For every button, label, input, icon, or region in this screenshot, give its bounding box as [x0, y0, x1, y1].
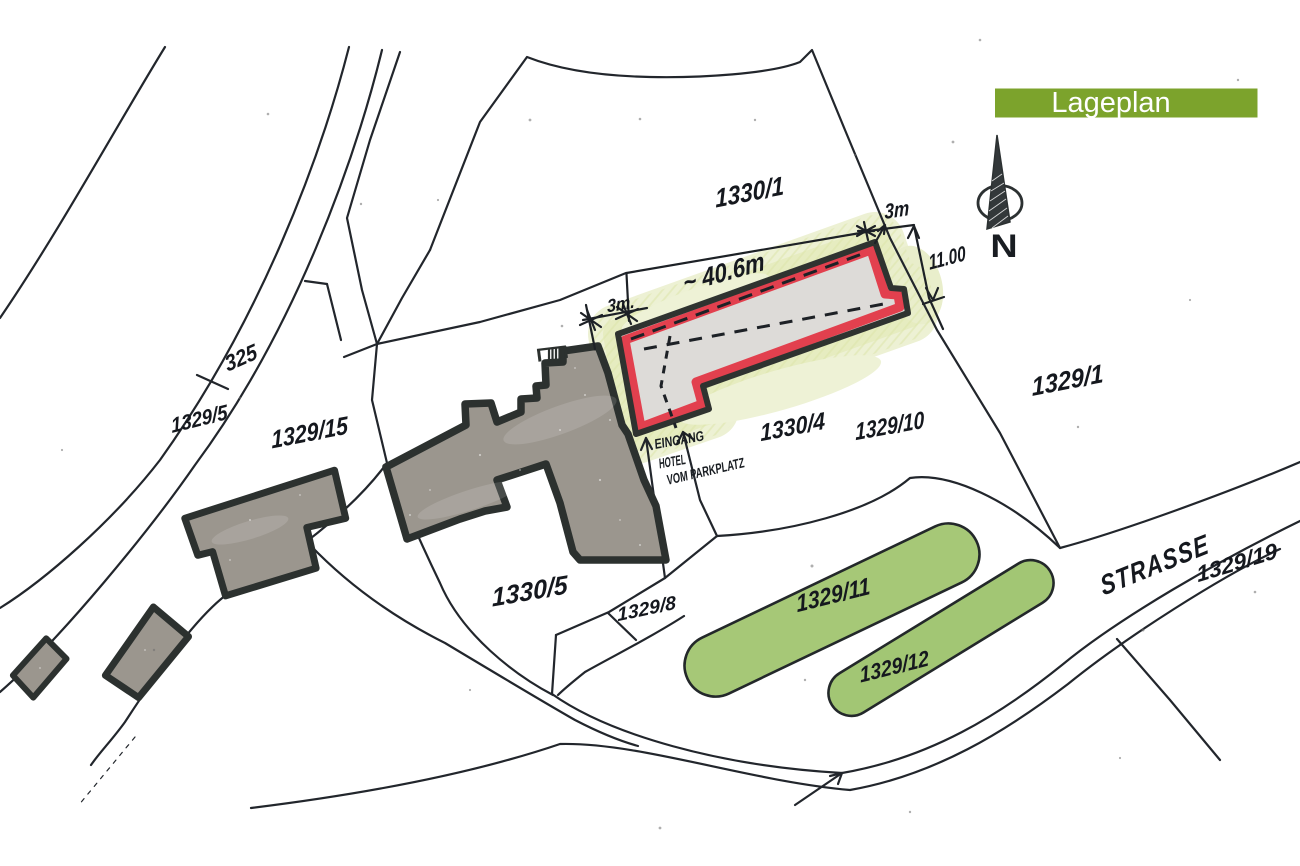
svg-text:Lageplan: Lageplan [1051, 87, 1170, 119]
svg-text:N: N [990, 229, 1017, 265]
svg-text:1329/5: 1329/5 [170, 401, 229, 438]
svg-text:1330/1: 1330/1 [714, 170, 784, 213]
svg-text:1329/1: 1329/1 [1031, 358, 1104, 402]
svg-text:1329/15: 1329/15 [271, 411, 350, 454]
svg-text:STRASSE: STRASSE [1097, 528, 1212, 602]
svg-text:1330/5: 1330/5 [491, 569, 568, 613]
svg-text:1329/8: 1329/8 [617, 593, 678, 627]
svg-text:11.00: 11.00 [927, 242, 967, 275]
svg-text:3m: 3m [884, 197, 909, 224]
svg-text:1330/4: 1330/4 [760, 408, 826, 448]
svg-text:1329/10: 1329/10 [855, 407, 925, 446]
